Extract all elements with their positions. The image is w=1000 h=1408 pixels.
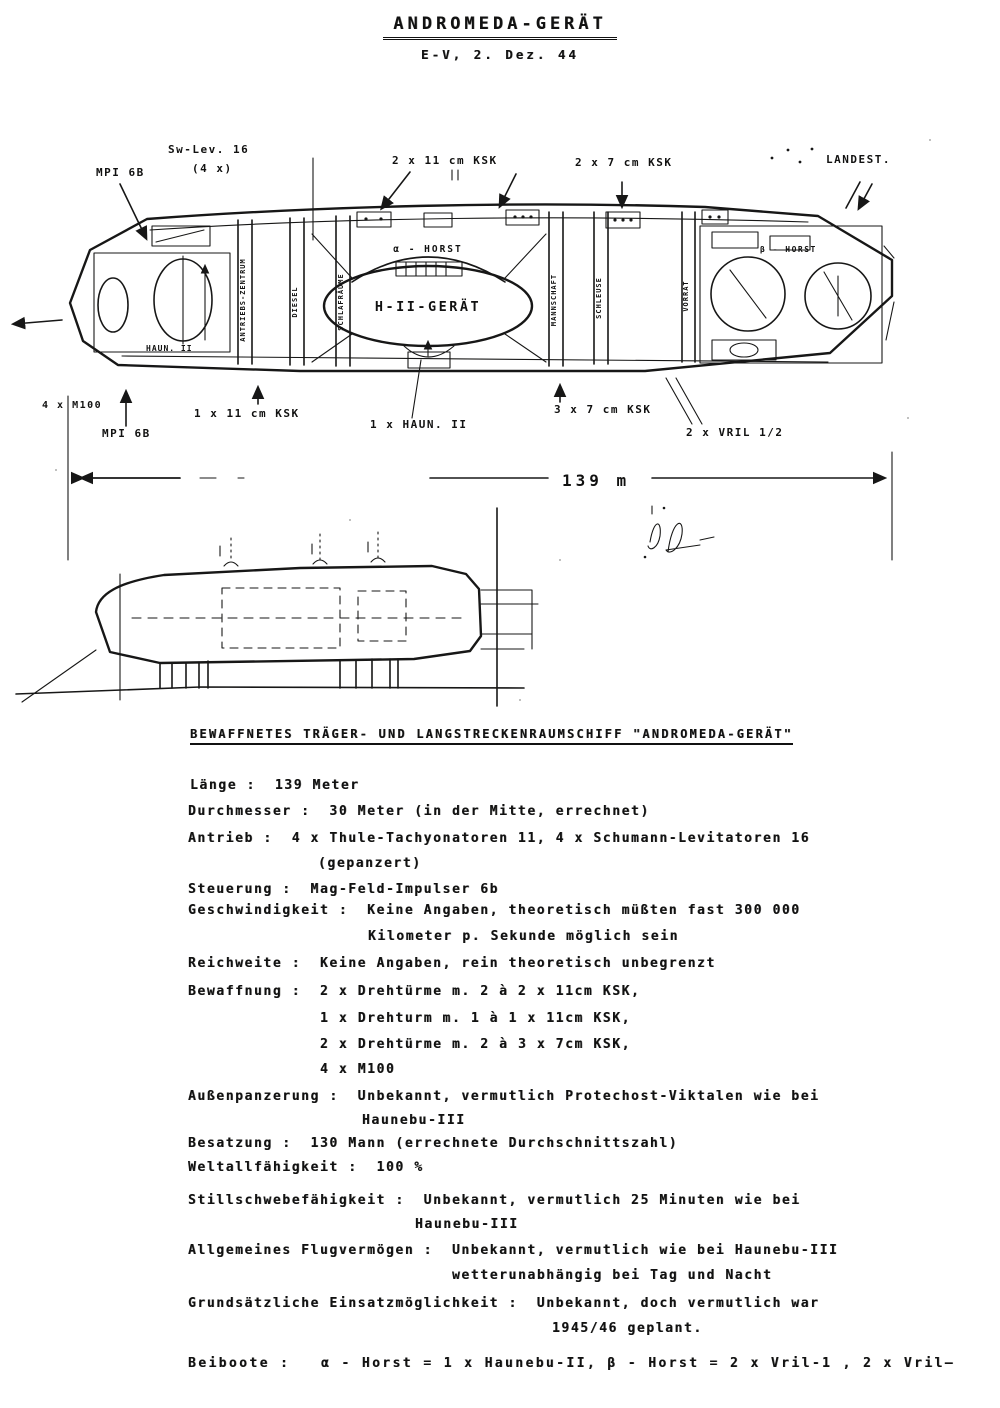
- beta-horst-label: β - HORST: [760, 245, 817, 254]
- callout-mpi-bottom: MPI 6B: [102, 427, 151, 440]
- callout-haunebu: 1 x HAUN. II: [370, 418, 467, 431]
- callout-ksk-7-bottom: 3 x 7 cm KSK: [554, 403, 651, 416]
- haunebu-bay-label: H-II-GERÄT: [375, 298, 481, 315]
- compartment-label: ANTRIEBS-ZENTRUM: [239, 258, 247, 341]
- scanned-document-page: ANDROMEDA-GERÄT E-V, 2. Dez. 44 HAUN. II: [0, 0, 1000, 1408]
- callout-swlev: Sw-Lev. 16: [168, 143, 249, 156]
- spec-line: Bewaffnung : 2 x Drehtürme m. 2 à 2 x 11…: [188, 984, 640, 999]
- scan-noise: [55, 139, 931, 701]
- callout-mpi-top: MPI 6B: [96, 166, 145, 179]
- handwritten-mark: [648, 523, 714, 552]
- document-date: E-V, 2. Dez. 44: [0, 47, 1000, 62]
- spec-line: 4 x M100: [320, 1062, 395, 1077]
- spec-line: Allgemeines Flugvermögen : Unbekannt, ve…: [188, 1243, 838, 1258]
- callout-m100: 4 x M100: [42, 400, 102, 411]
- spec-line: Antrieb : 4 x Thule-Tachyonatoren 11, 4 …: [188, 831, 810, 846]
- spec-line: Reichweite : Keine Angaben, rein theoret…: [188, 956, 716, 971]
- callout-landest: LANDEST.: [826, 153, 891, 166]
- spec-line: 2 x Drehtürme m. 2 à 3 x 7cm KSK,: [320, 1037, 631, 1052]
- spec-line: 1 x Drehturm m. 1 à 1 x 11cm KSK,: [320, 1011, 631, 1026]
- spec-line: Haunebu-III: [362, 1113, 466, 1128]
- spec-line: Beiboote : α - Horst = 1 x Haunebu-II, β…: [188, 1356, 955, 1371]
- spec-line: Weltallfähigkeit : 100 %: [188, 1160, 424, 1175]
- spec-line: 1945/46 geplant.: [552, 1321, 703, 1336]
- callout-swlev-count: (4 x): [192, 162, 233, 175]
- document-title: ANDROMEDA-GERÄT: [383, 14, 617, 40]
- compartment-label: SCHLAFRÄUME: [336, 273, 345, 330]
- spec-line: wetterunabhängig bei Tag und Nacht: [452, 1268, 773, 1283]
- callout-vril: 2 x VRIL 1/2: [686, 426, 783, 439]
- compartment-label: DIESEL: [291, 286, 299, 317]
- spec-line: Kilometer p. Sekunde möglich sein: [368, 929, 679, 944]
- spec-line: Außenpanzerung : Unbekannt, vermutlich P…: [188, 1089, 820, 1104]
- callout-ksk-11: 2 x 11 cm KSK: [392, 154, 498, 167]
- spec-line: Durchmesser : 30 Meter (in der Mitte, er…: [188, 804, 650, 819]
- spec-line: Stillschwebefähigkeit : Unbekannt, vermu…: [188, 1193, 801, 1208]
- spec-line: (gepanzert): [318, 856, 422, 871]
- compartment-label: VORRAT: [682, 280, 690, 311]
- callout-ksk-11-bottom: 1 x 11 cm KSK: [194, 407, 300, 420]
- alpha-horst-label: α - HORST: [393, 244, 462, 255]
- technical-drawing: HAUN. II α - HORST H-II-GERÄT: [0, 105, 1000, 710]
- spec-line: Haunebu-III: [415, 1217, 519, 1232]
- spec-line: Steuerung : Mag-Feld-Impulser 6b: [188, 882, 499, 897]
- compartment-label: MANNSCHAFT: [550, 274, 558, 326]
- spec-line: Grundsätzliche Einsatzmöglichkeit : Unbe…: [188, 1296, 820, 1311]
- spec-line: Geschwindigkeit : Keine Angaben, theoret…: [188, 903, 801, 918]
- dimension-line: 139 m: [68, 396, 892, 560]
- spec-line: Länge : 139 Meter: [190, 778, 360, 793]
- compartment-label: SCHLEUSE: [595, 277, 603, 319]
- side-view: [16, 508, 538, 706]
- callout-ksk-7: 2 x 7 cm KSK: [575, 156, 672, 169]
- top-view-hull: HAUN. II α - HORST H-II-GERÄT: [14, 204, 894, 371]
- spec-line: Besatzung : 130 Mann (errechnete Durchsc…: [188, 1136, 678, 1151]
- dimension-value: 139 m: [562, 471, 630, 490]
- title-block: ANDROMEDA-GERÄT E-V, 2. Dez. 44: [0, 14, 1000, 62]
- left-bay-label: HAUN. II: [146, 344, 193, 353]
- section-heading: BEWAFFNETES TRÄGER- UND LANGSTRECKENRAUM…: [190, 727, 793, 745]
